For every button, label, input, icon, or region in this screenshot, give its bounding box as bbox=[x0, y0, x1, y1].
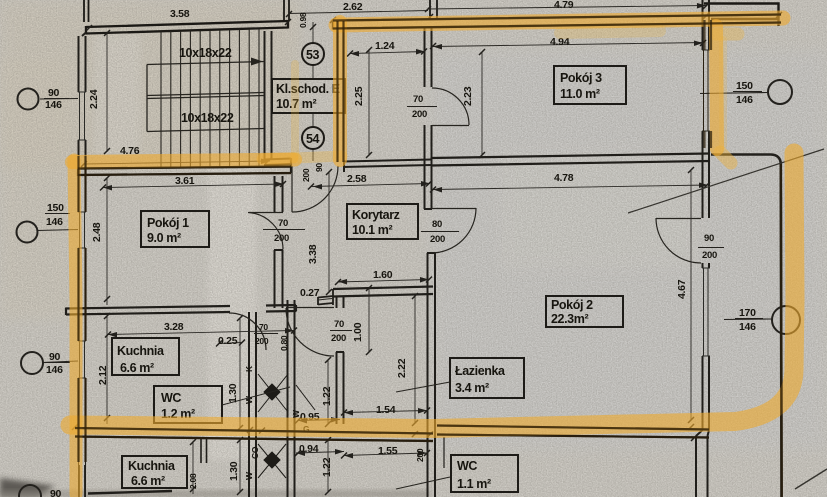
svg-text:70: 70 bbox=[334, 319, 344, 330]
svg-text:3.38: 3.38 bbox=[307, 244, 319, 264]
svg-text:2.58: 2.58 bbox=[347, 173, 367, 185]
svg-text:90: 90 bbox=[704, 233, 714, 244]
svg-text:1.22: 1.22 bbox=[321, 386, 333, 406]
svg-text:146: 146 bbox=[739, 321, 756, 333]
svg-text:2.24: 2.24 bbox=[88, 89, 100, 109]
svg-text:200: 200 bbox=[331, 333, 346, 344]
svg-text:2.12: 2.12 bbox=[97, 365, 109, 385]
svg-text:200: 200 bbox=[430, 234, 445, 245]
svg-text:Łazienka: Łazienka bbox=[455, 364, 506, 378]
svg-text:90: 90 bbox=[50, 488, 62, 497]
svg-text:4.78: 4.78 bbox=[554, 172, 574, 184]
svg-text:2.08: 2.08 bbox=[188, 473, 198, 489]
svg-text:0.98: 0.98 bbox=[298, 12, 308, 28]
svg-text:90: 90 bbox=[49, 351, 61, 363]
svg-text:4.79: 4.79 bbox=[554, 0, 574, 11]
svg-text:90: 90 bbox=[48, 87, 60, 99]
svg-text:200: 200 bbox=[415, 448, 425, 462]
svg-text:10x18x22: 10x18x22 bbox=[181, 111, 234, 125]
svg-text:22.3m²: 22.3m² bbox=[551, 312, 588, 326]
svg-text:3.58: 3.58 bbox=[170, 8, 190, 20]
svg-text:3.61: 3.61 bbox=[175, 175, 195, 187]
svg-text:Kl.schod. E: Kl.schod. E bbox=[276, 82, 340, 96]
svg-text:1.30: 1.30 bbox=[228, 461, 240, 481]
svg-text:Kuchnia: Kuchnia bbox=[128, 459, 176, 473]
svg-text:Pokój 2: Pokój 2 bbox=[551, 298, 593, 312]
svg-text:11.0 m²: 11.0 m² bbox=[560, 87, 600, 101]
svg-text:2.48: 2.48 bbox=[91, 222, 103, 242]
svg-text:4.67: 4.67 bbox=[676, 279, 688, 299]
svg-text:9.0 m²: 9.0 m² bbox=[147, 231, 181, 245]
svg-text:170: 170 bbox=[739, 307, 756, 319]
svg-text:Pokój 3: Pokój 3 bbox=[560, 71, 602, 85]
svg-text:3.4 m²: 3.4 m² bbox=[455, 381, 489, 395]
svg-text:2.23: 2.23 bbox=[462, 86, 474, 106]
svg-text:6.6 m²: 6.6 m² bbox=[131, 474, 165, 488]
svg-text:1.22: 1.22 bbox=[321, 457, 333, 477]
svg-text:WC: WC bbox=[457, 459, 477, 473]
svg-text:200: 200 bbox=[412, 109, 427, 120]
svg-text:Pokój 1: Pokój 1 bbox=[147, 216, 189, 230]
svg-text:146: 146 bbox=[736, 94, 753, 106]
svg-text:10.1 m²: 10.1 m² bbox=[352, 223, 393, 237]
svg-text:1.24: 1.24 bbox=[375, 40, 395, 52]
svg-text:1.30: 1.30 bbox=[227, 383, 239, 403]
svg-text:1.55: 1.55 bbox=[378, 445, 398, 457]
svg-text:200: 200 bbox=[702, 250, 717, 261]
svg-text:200: 200 bbox=[274, 233, 289, 244]
svg-text:70: 70 bbox=[259, 322, 268, 332]
svg-text:2.25: 2.25 bbox=[353, 86, 365, 106]
svg-text:54: 54 bbox=[306, 132, 320, 146]
svg-text:3.28: 3.28 bbox=[164, 321, 184, 333]
svg-text:1.54: 1.54 bbox=[376, 404, 396, 416]
svg-text:WC: WC bbox=[161, 391, 181, 405]
svg-text:146: 146 bbox=[46, 216, 63, 228]
svg-text:70: 70 bbox=[278, 218, 288, 229]
svg-text:Korytarz: Korytarz bbox=[352, 208, 400, 222]
svg-text:1.00: 1.00 bbox=[352, 322, 364, 342]
svg-text:W: W bbox=[244, 471, 254, 480]
svg-text:2.62: 2.62 bbox=[343, 1, 363, 13]
svg-text:70: 70 bbox=[413, 94, 423, 105]
svg-text:0.80: 0.80 bbox=[279, 335, 289, 351]
svg-text:W: W bbox=[244, 395, 254, 404]
svg-text:80: 80 bbox=[432, 219, 442, 230]
svg-text:2.22: 2.22 bbox=[396, 358, 408, 378]
svg-text:200: 200 bbox=[301, 168, 311, 182]
svg-text:0.25: 0.25 bbox=[218, 335, 238, 347]
svg-text:0.94: 0.94 bbox=[299, 443, 319, 455]
svg-text:53: 53 bbox=[306, 48, 320, 62]
svg-text:Kuchnia: Kuchnia bbox=[117, 344, 165, 358]
svg-text:150: 150 bbox=[47, 202, 64, 214]
svg-text:200: 200 bbox=[255, 336, 269, 346]
svg-text:CO: CO bbox=[250, 446, 260, 459]
svg-text:146: 146 bbox=[46, 364, 63, 376]
svg-text:10x18x22: 10x18x22 bbox=[179, 46, 232, 60]
svg-text:1.1 m²: 1.1 m² bbox=[457, 477, 491, 491]
svg-text:6.6 m²: 6.6 m² bbox=[120, 361, 154, 375]
svg-text:90: 90 bbox=[314, 163, 324, 172]
svg-text:0.27: 0.27 bbox=[300, 287, 320, 299]
svg-text:146: 146 bbox=[45, 99, 62, 111]
svg-text:150: 150 bbox=[736, 80, 753, 92]
svg-text:1.60: 1.60 bbox=[373, 269, 393, 281]
